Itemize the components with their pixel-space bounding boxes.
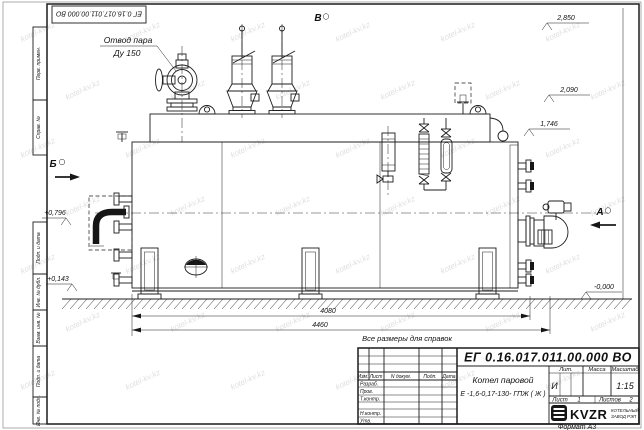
watermark-text: kotel-kv.kz <box>124 136 162 160</box>
margin-vzam-inv: Взам. инв. № <box>36 312 42 344</box>
tb-col-date: Дата <box>441 374 455 380</box>
elevation-value: +0,796 <box>44 210 66 217</box>
company-logo: KVZR КОТЕЛЬНЫЙ ЗАВОД РЭП <box>551 405 639 422</box>
tb-lit-value: И <box>551 381 558 391</box>
watermark-text: kotel-kv.kz <box>169 194 207 218</box>
watermark-text: kotel-kv.kz <box>124 368 162 392</box>
dim-4080: 4080 <box>320 308 336 315</box>
logo-text: KVZR <box>570 407 608 422</box>
elevation-0143: +0,143 <box>46 276 77 291</box>
dim-4460: 4460 <box>312 322 328 329</box>
watermark-text: kotel-kv.kz <box>229 252 267 276</box>
tb-product-designation: Е -1,6-0,17-130- ГПЖ ( Ж ) <box>460 391 545 398</box>
tb-row-razrab: Разраб. <box>360 382 378 388</box>
tb-col-podp: Подп. <box>423 374 436 380</box>
watermark-text: kotel-kv.kz <box>379 194 417 218</box>
watermark-text: kotel-kv.kz <box>274 194 312 218</box>
watermark-text: kotel-kv.kz <box>544 136 582 160</box>
margin-inv-dubl: Инв. № дубл. <box>36 277 42 308</box>
tb-row-prov: Пров. <box>360 389 373 395</box>
view-b-label: Б <box>49 159 56 170</box>
view-marker-b: Б <box>49 159 80 181</box>
elevation-value: 2,090 <box>559 87 578 94</box>
ground <box>62 299 632 309</box>
title-block: ЕГ 0.16.017.011.00.000 ВО Котел паровой … <box>358 348 640 425</box>
elevation-2090: 2,090 <box>544 87 590 102</box>
watermark-text: kotel-kv.kz <box>484 194 522 218</box>
elevation-value: 1,746 <box>540 121 558 128</box>
elevation-1746: 1,746 <box>524 121 570 136</box>
view-a-label: А <box>595 207 603 218</box>
tb-sheets-value: 2 <box>628 398 633 404</box>
elevation-value: -0,000 <box>594 284 614 291</box>
tb-sheets-label: Листов <box>598 398 621 404</box>
logo-sub2: ЗАВОД РЭП <box>611 414 637 419</box>
watermark-layer: kotel-kv.kzkotel-kv.kzkotel-kv.kzkotel-k… <box>19 20 627 392</box>
blueprint-page: kotel-kv.kzkotel-kv.kzkotel-kv.kzkotel-k… <box>0 0 644 430</box>
margin-inv-podl: Инв. № подл. <box>36 395 42 426</box>
view-marker-v: В <box>314 13 328 24</box>
callout-line1: Отвод пара <box>104 35 153 45</box>
gauge-glass-1 <box>419 118 429 190</box>
watermark-text: kotel-kv.kz <box>334 20 372 44</box>
watermark-text: kotel-kv.kz <box>589 194 627 218</box>
tb-sheet-value: 1 <box>577 398 580 404</box>
logo-sub1: КОТЕЛЬНЫЙ <box>611 408 639 413</box>
watermark-text: kotel-kv.kz <box>229 20 267 44</box>
tb-doc-number: ЕГ 0.16.017.011.00.000 ВО <box>464 351 632 365</box>
tb-product-name: Котел паровой <box>473 375 534 385</box>
watermark-text: kotel-kv.kz <box>439 252 477 276</box>
watermark-text: kotel-kv.kz <box>229 136 267 160</box>
watermark-text: kotel-kv.kz <box>589 78 627 102</box>
tb-mass-label: Масса <box>588 367 606 373</box>
manhole <box>184 256 208 278</box>
tb-row-tkontr: Т.контр. <box>360 397 380 403</box>
steam-outlet-callout: Отвод пара Ду 150 <box>100 35 176 71</box>
burner <box>518 201 571 248</box>
tb-lit-label: Лит. <box>558 367 573 373</box>
watermark-text: kotel-kv.kz <box>439 20 477 44</box>
elevation-value: +0,143 <box>47 276 69 283</box>
top-doc-number: ЕГ 0.16.017.011.00.000 ВО <box>55 10 142 17</box>
annotations: Отвод пара Ду 150 Б В А 2,850 <box>42 13 622 343</box>
watermark-text: kotel-kv.kz <box>589 310 627 334</box>
watermark-text: kotel-kv.kz <box>544 20 582 44</box>
watermark-text: kotel-kv.kz <box>439 136 477 160</box>
tb-row-utv: Утв. <box>360 419 371 425</box>
format-label: Формат А3 <box>558 424 596 430</box>
tb-col-izm: Изм. <box>358 374 369 380</box>
tb-sheet-label: Лист <box>551 398 567 404</box>
margin-podp-data-1: Подп. и дата <box>36 232 42 264</box>
margin-sprav-no: Справ. № <box>36 116 42 139</box>
callout-line2: Ду 150 <box>113 48 141 58</box>
top-doc-number-box: ЕГ 0.16.017.011.00.000 ВО <box>52 6 146 23</box>
watermark-text: kotel-kv.kz <box>334 136 372 160</box>
tb-col-list: Лист <box>369 374 383 380</box>
view-v-label: В <box>314 13 321 24</box>
watermark-text: kotel-kv.kz <box>229 368 267 392</box>
tb-scale-label: Масштаб <box>611 367 639 373</box>
watermark-text: kotel-kv.kz <box>274 78 312 102</box>
watermark-text: kotel-kv.kz <box>334 252 372 276</box>
watermark-text: kotel-kv.kz <box>64 78 102 102</box>
level-column <box>377 133 395 183</box>
watermark-text: kotel-kv.kz <box>19 20 57 44</box>
tb-col-docum: N докум. <box>391 374 411 380</box>
watermark-text: kotel-kv.kz <box>544 252 582 276</box>
watermark-text: kotel-kv.kz <box>64 310 102 334</box>
watermark-text: kotel-kv.kz <box>124 252 162 276</box>
margin-perv-primen: Перв. примен. <box>36 47 42 80</box>
tb-row-nkontr: Н.контр. <box>360 411 381 417</box>
tb-scale-value: 1:15 <box>616 381 635 391</box>
safety-valve-2 <box>267 26 299 114</box>
watermark-text: kotel-kv.kz <box>484 78 522 102</box>
watermark-text: kotel-kv.kz <box>64 194 102 218</box>
reference-note: Все размеры для справок <box>362 334 452 343</box>
margin-podp-data-2: Подп. и дата <box>36 356 42 388</box>
elevation-0000: -0,000 <box>581 284 622 299</box>
elevation-value: 2,850 <box>556 15 575 22</box>
watermark-text: kotel-kv.kz <box>379 78 417 102</box>
margin-stamps: Перв. примен. Справ. № Подп. и дата Инв.… <box>33 27 47 426</box>
